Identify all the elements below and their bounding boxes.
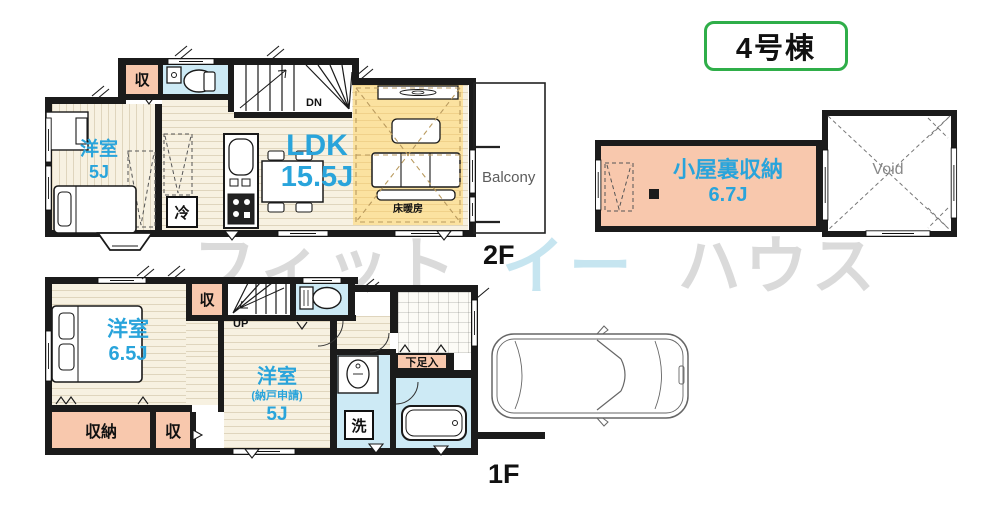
washbasin-icon [338, 356, 378, 393]
toilet-1f-icon [300, 287, 341, 309]
bay-window-2f [98, 233, 152, 250]
room-size: 5J [222, 403, 332, 427]
sofa-icon [372, 153, 460, 200]
unit-badge: 4号棟 [704, 21, 848, 71]
room-name: 洋室 [64, 138, 134, 161]
laundry-label: 洗 [351, 415, 366, 436]
bedroom-2f-label: 洋室 5J [64, 138, 134, 183]
balcony-outline [474, 83, 545, 233]
pantry-dashed-2f [164, 134, 192, 195]
room-size: 6.7J [648, 183, 808, 208]
room-size: 6.5J [86, 342, 170, 366]
coffee-table-icon [392, 119, 440, 143]
fridge-box: 冷 [166, 196, 198, 228]
room-name: 洋室 [86, 317, 170, 342]
attic-storage-label: 小屋裏収納 6.7J [648, 156, 808, 208]
room-name: 洋室 [222, 366, 332, 389]
sliding-door-marks [56, 397, 148, 404]
stairs-2f-icon [240, 65, 352, 111]
stairs-1f-icon [233, 283, 286, 314]
bedroom2-1f-label: 洋室 (納戸申請) 5J [222, 366, 332, 427]
attic-ladder-icon [605, 163, 633, 211]
room-note: (納戸申請) [222, 389, 332, 403]
kitchen-counter-icon [224, 134, 258, 228]
bathtub-icon [402, 406, 466, 440]
room-size: 5J [64, 161, 134, 183]
fridge-label: 冷 [174, 202, 189, 223]
void-label: Void [848, 161, 928, 179]
room-name: 小屋裏収納 [648, 156, 808, 183]
bedroom-1f-label: 洋室 6.5J [86, 317, 170, 366]
floor-heating-label: 床暖房 [352, 200, 464, 215]
ldk-label: LDK 15.5J [264, 130, 370, 192]
door-open-marker [193, 430, 202, 440]
toilet-2f-icon [167, 67, 215, 92]
room-name: LDK [264, 130, 370, 162]
floor-plan-page: フィット イー ハウス 4号棟 収 洋室 5J LDK 15.5J 床暖房 DN… [0, 0, 1000, 514]
door-swing-marks-2f [92, 46, 373, 104]
car-icon [492, 326, 688, 426]
balcony-label: Balcony [482, 169, 535, 186]
stairs-up-label: UP [233, 318, 248, 330]
floor-2f-label: 2F [483, 240, 515, 271]
bed-single-icon [54, 186, 136, 233]
genkan-step-marks [297, 322, 446, 352]
laundry-box: 洗 [344, 410, 374, 440]
room-size: 15.5J [264, 162, 370, 192]
floor-1f-label: 1F [488, 459, 520, 490]
stairs-dn-label: DN [306, 97, 322, 109]
